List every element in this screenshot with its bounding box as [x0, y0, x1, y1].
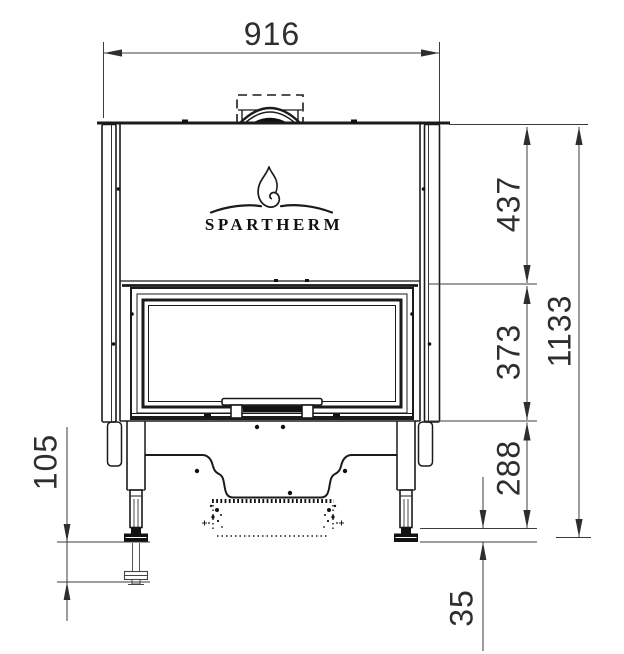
- door-glass: [149, 306, 396, 402]
- left-foot-extended-position: [125, 543, 148, 585]
- dim-door-height: 373: [425, 286, 537, 421]
- dim-total-height: 1133: [542, 127, 591, 538]
- dim-total-width: 916: [104, 16, 440, 122]
- dim-base-height-label: 288: [491, 440, 527, 496]
- left-side-rail: [102, 125, 122, 467]
- base-pan: [145, 421, 397, 498]
- dim-hood-height: 437: [428, 125, 588, 285]
- flue-outlet: [237, 95, 303, 123]
- dim-total-width-label: 916: [244, 16, 300, 52]
- logo-swoosh-left: [211, 205, 261, 212]
- door-glass-frame: [143, 300, 401, 407]
- dim-foot-height: 35: [420, 477, 537, 651]
- dim-foot-height-label: 35: [444, 589, 480, 627]
- handle-post-left: [231, 405, 242, 418]
- brand-name: SPARTHERM: [205, 215, 343, 234]
- dim-leg-adjustment-label: 105: [28, 434, 64, 490]
- dim-leg-adjustment: 105: [28, 427, 150, 621]
- right-mounting-tab: [419, 422, 433, 466]
- base-bottom-profile: [145, 455, 397, 498]
- flame-icon-inner: [269, 167, 277, 192]
- drawing-page: 916: [0, 0, 624, 654]
- dim-hood-height-label: 437: [491, 176, 527, 232]
- dim-base-height: 288: [420, 423, 537, 529]
- dim-total-height-label: 1133: [542, 295, 578, 368]
- left-mounting-tab: [108, 422, 122, 466]
- hood-panel: [117, 124, 426, 421]
- air-inlet-dashed-box: [202, 501, 344, 536]
- handle-post-right: [302, 405, 313, 418]
- brand-logo: SPARTHERM: [205, 167, 343, 234]
- right-side-rail: [419, 125, 440, 467]
- dim-door-height-label: 373: [491, 324, 527, 380]
- flame-icon: [258, 167, 279, 207]
- arrowhead-left: [104, 49, 122, 56]
- logo-swoosh-right: [281, 205, 332, 212]
- fireplace-technical-drawing: 916: [0, 0, 624, 654]
- handle-bar: [222, 399, 322, 406]
- arrowhead-right: [421, 49, 439, 56]
